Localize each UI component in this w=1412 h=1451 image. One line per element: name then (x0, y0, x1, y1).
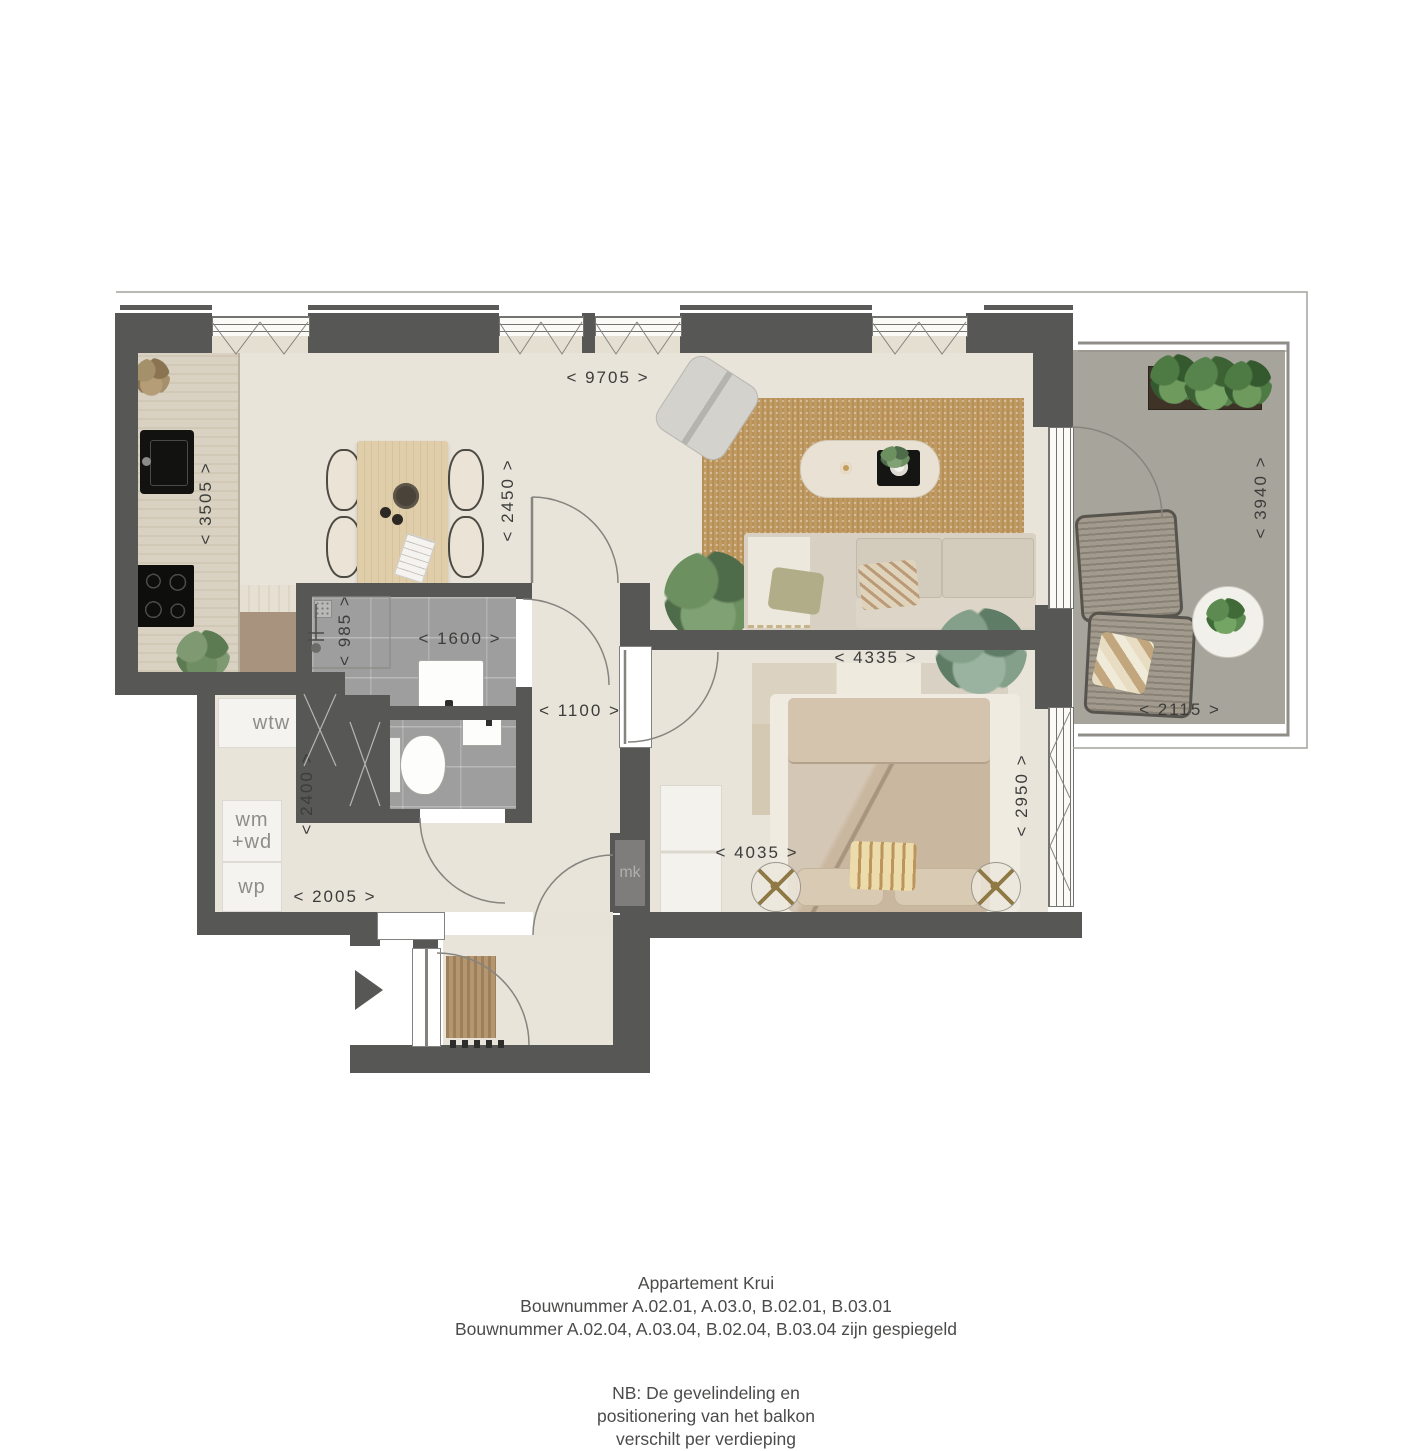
dim-kitchen-depth: < 3505 > (196, 461, 216, 544)
bed-foot-fold (788, 698, 990, 764)
dim-bedroom-depth: < 2950 > (1012, 753, 1032, 836)
wall (350, 912, 380, 946)
window (595, 316, 682, 337)
window-sill (212, 336, 308, 353)
dim-bathroom-width: < 1600 > (418, 629, 501, 649)
dim-living-width: < 9705 > (566, 368, 649, 388)
hall-floor (532, 597, 620, 912)
wall (345, 706, 516, 720)
balcony-door-glazing (1048, 427, 1074, 609)
dim-utility-depth: < 2400 > (297, 751, 317, 834)
meter-cupboard-door: mk (615, 840, 645, 906)
bouwnummer-line: Bouwnummer A.02.01, A.03.0, B.02.01, B.0… (0, 1295, 1412, 1318)
toilet-sink (462, 718, 502, 746)
bedroom-door-frame (619, 646, 652, 748)
balcony-pillow (1091, 631, 1155, 695)
dining-chair (448, 449, 484, 511)
front-door-threshold (450, 1040, 504, 1048)
window-sill (499, 336, 582, 353)
utility-opening (377, 912, 445, 940)
wall (350, 1045, 650, 1073)
toilet-sink-tap (486, 720, 492, 726)
wall (613, 915, 650, 1073)
wall (197, 695, 215, 935)
dim-shower-width: < 985 > (335, 594, 355, 666)
dim-living-zone: < 2450 > (498, 458, 518, 541)
heat-pump-unit: wp (222, 862, 282, 912)
nb-line1: NB: De gevelindeling en (0, 1382, 1412, 1405)
wall (308, 313, 499, 353)
facade-lintel (120, 305, 212, 310)
wp-label: wp (238, 876, 266, 899)
sofa-pillow-pattern (858, 559, 920, 611)
dim-hall-width: < 1100 > (539, 701, 621, 721)
title-block: Appartement Krui Bouwnummer A.02.01, A.0… (0, 1272, 1412, 1341)
wall (1033, 353, 1073, 427)
cup (380, 507, 391, 518)
bedroom-window (1048, 707, 1074, 907)
cooktop (136, 565, 194, 627)
facade-lintel (308, 305, 499, 310)
teapot (393, 483, 419, 509)
window-sill (595, 336, 680, 353)
wall (966, 313, 1073, 353)
plan-title: Appartement Krui (0, 1272, 1412, 1295)
kitchen-sink-basin (150, 440, 188, 486)
mk-label: mk (619, 864, 640, 882)
bedroom-plant (935, 608, 1027, 694)
dim-bedroom-length: < 4035 > (715, 843, 798, 863)
wall (296, 583, 532, 597)
entrance-arrow-icon (355, 970, 383, 1010)
front-door-frame (412, 948, 441, 1047)
facade-lintel (680, 305, 872, 310)
nb-line2: positionering van het balkon (0, 1405, 1412, 1428)
nightstand (971, 862, 1021, 912)
dim-balcony-width: < 2115 > (1139, 700, 1221, 720)
coffee-cup (840, 462, 852, 474)
kitchen-faucet (142, 457, 151, 466)
toilet-bowl (400, 735, 446, 795)
bouwnummer-mirrored-line: Bouwnummer A.02.04, A.03.04, B.02.04, B.… (0, 1318, 1412, 1341)
toilet-doorway (420, 809, 505, 823)
doormat (446, 956, 496, 1038)
floor-plan: wtw wm +wd wp mk (0, 0, 1412, 1440)
window (872, 316, 968, 337)
wall (650, 912, 1082, 938)
dim-utility-width: < 2005 > (293, 887, 376, 907)
balcony-chair (1074, 509, 1183, 624)
window (212, 316, 310, 337)
sofa-cushion (942, 538, 1034, 598)
nb-block: NB: De gevelindeling en positionering va… (0, 1382, 1412, 1451)
wall (115, 313, 138, 672)
hall-vestibule-doorway (533, 912, 613, 935)
window-sill (872, 336, 966, 353)
bed-cushion-pattern (849, 841, 917, 891)
dining-chair (448, 516, 484, 578)
dim-balcony-depth: < 3940 > (1251, 455, 1271, 538)
wall (620, 630, 1035, 650)
planter-foliage (1224, 360, 1272, 408)
window (499, 316, 584, 337)
facade-lintel (984, 305, 1073, 310)
nightstand (751, 862, 801, 912)
balcony-table-plant (1206, 598, 1246, 634)
dried-plant (134, 358, 170, 396)
wall (296, 583, 312, 700)
wall (680, 313, 872, 353)
wall (1035, 605, 1072, 709)
dim-bedroom-width: < 4335 > (834, 648, 917, 668)
tray-plant (880, 446, 910, 468)
wm-label: wm (235, 809, 268, 831)
wardrobe (660, 785, 722, 919)
shower-drain (314, 600, 332, 618)
wtw-label: wtw (253, 712, 290, 735)
sofa-pillow-olive (767, 567, 824, 616)
bathroom-doorway (516, 599, 532, 687)
wd-label: +wd (232, 831, 272, 853)
washer-dryer-unit: wm +wd (222, 800, 282, 862)
cup (392, 514, 403, 525)
